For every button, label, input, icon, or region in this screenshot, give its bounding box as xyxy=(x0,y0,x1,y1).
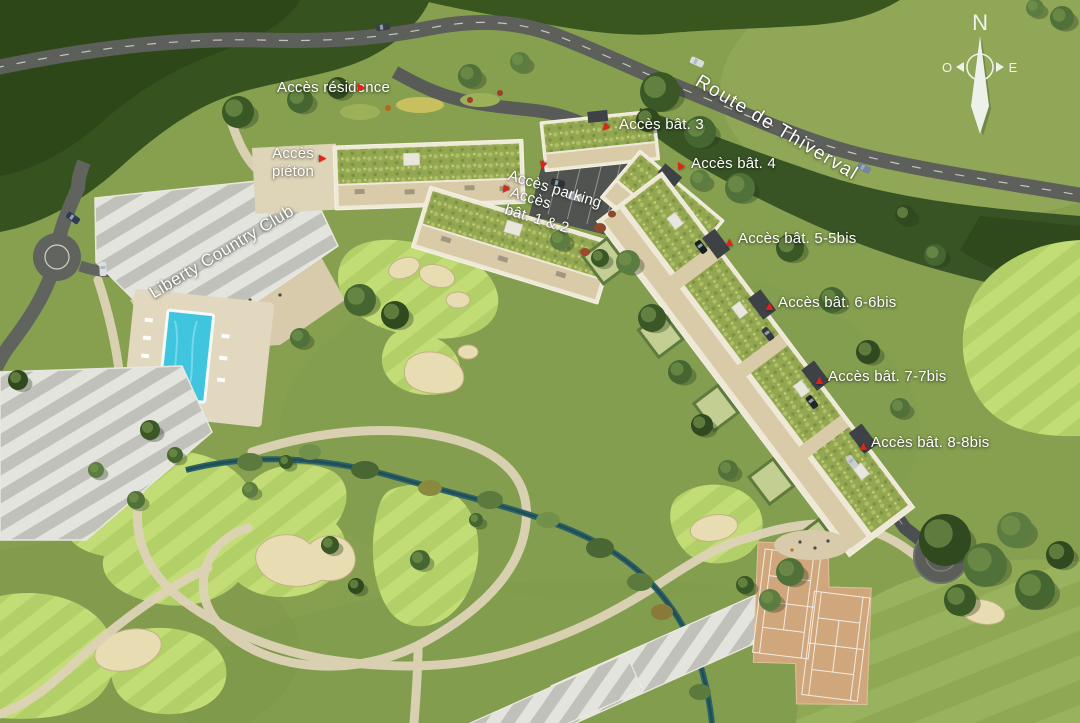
compass-east-label: E xyxy=(1009,60,1018,75)
tennis-patio xyxy=(774,530,850,560)
site-plan-rendering: N O E xyxy=(0,0,1080,723)
compass-north-label: N xyxy=(972,10,988,35)
car xyxy=(99,262,106,276)
site-plan: N O E Accès résidence▲Accès piéton▲Accès… xyxy=(0,0,1080,723)
roundabout xyxy=(33,233,81,281)
compass-west-label: O xyxy=(942,60,952,75)
